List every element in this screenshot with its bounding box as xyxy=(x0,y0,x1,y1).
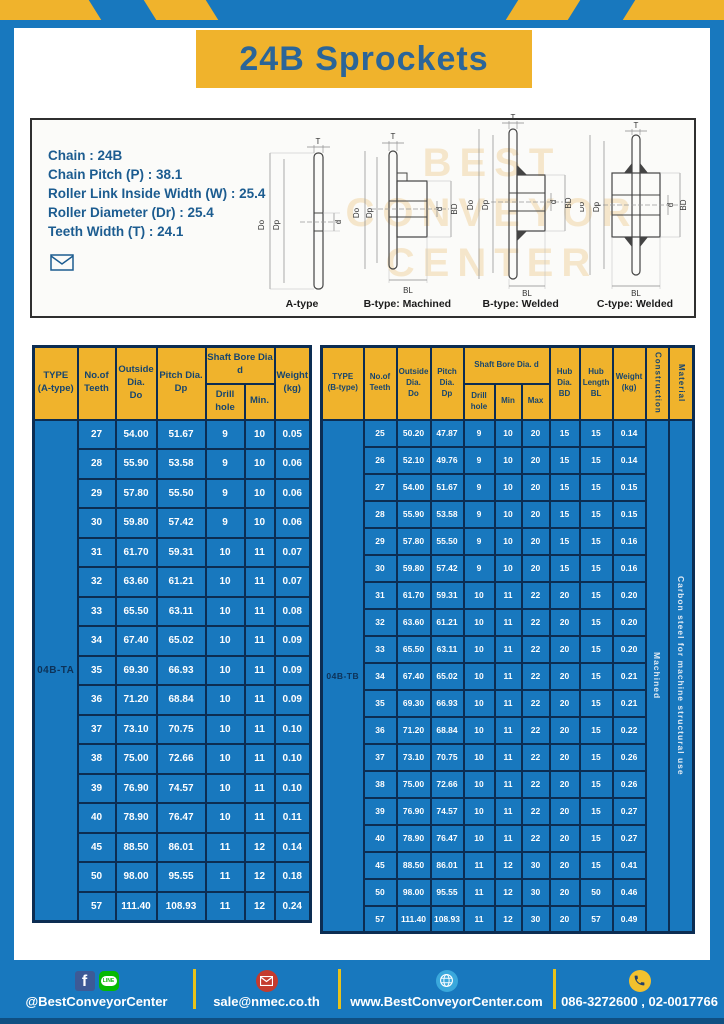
table-cell: 57.80 xyxy=(397,528,431,555)
table-cell: 32 xyxy=(78,567,116,597)
table-cell: 78.90 xyxy=(397,825,431,852)
table-cell: 0.15 xyxy=(613,474,646,501)
table-cell: 98.00 xyxy=(397,879,431,906)
svg-text:d: d xyxy=(435,207,444,211)
drawing-b-machined: T Do Dp d BD xyxy=(353,125,461,310)
table-cell: 10 xyxy=(245,508,275,538)
table-cell: 53.58 xyxy=(431,501,464,528)
table-cell: 11 xyxy=(495,744,522,771)
table-cell: 0.27 xyxy=(613,798,646,825)
table-row: 5098.0095.5511123020500.46 xyxy=(322,879,694,906)
table-cell: 20 xyxy=(550,906,580,933)
table-cell: 20 xyxy=(550,825,580,852)
table-cell: 10 xyxy=(495,474,522,501)
table-cell: 55.50 xyxy=(157,479,206,509)
table-cell: 15 xyxy=(580,420,613,447)
table-cell: 10 xyxy=(464,609,495,636)
col-min: Min. xyxy=(245,384,275,420)
table-cell: 0.10 xyxy=(275,715,311,745)
table-cell: 11 xyxy=(495,663,522,690)
table-cell: 22 xyxy=(522,636,550,663)
table-cell: 15 xyxy=(580,744,613,771)
table-cell: 10 xyxy=(464,798,495,825)
table-cell: 20 xyxy=(550,609,580,636)
table-cell: 0.05 xyxy=(275,420,311,450)
spec-box: BEST CONVEYOR CENTER Chain : 24B Chain P… xyxy=(30,118,696,318)
table-cell: 20 xyxy=(550,771,580,798)
table-cell: 76.90 xyxy=(116,774,157,804)
table-cell: 65.50 xyxy=(116,597,157,627)
table-a-type: TYPE (A-type) No.of Teeth Outside Dia. D… xyxy=(32,345,312,923)
table-cell: 15 xyxy=(550,501,580,528)
table-row: 3263.6061.2110112220150.20 xyxy=(322,609,694,636)
table-cell: 0.26 xyxy=(613,771,646,798)
table-cell: 10 xyxy=(206,538,245,568)
table-cell: 11 xyxy=(206,862,245,892)
facebook-icon: f xyxy=(75,971,95,991)
table-cell: 75.00 xyxy=(116,744,157,774)
table-row: 3875.0072.6610112220150.26 xyxy=(322,771,694,798)
spec-line: Roller Link Inside Width (W) : 25.4 xyxy=(48,184,265,203)
table-cell: 10 xyxy=(206,626,245,656)
table-cell: 65.50 xyxy=(397,636,431,663)
catalog-page: 24B Sprockets BEST CONVEYOR CENTER Chain… xyxy=(0,0,724,1024)
table-cell: 10 xyxy=(464,744,495,771)
table-cell: 72.66 xyxy=(157,744,206,774)
table-cell: 20 xyxy=(550,717,580,744)
phone-numbers: 086-3272600 , 02-0017766 xyxy=(561,994,718,1009)
table-cell: 20 xyxy=(550,582,580,609)
drawing-caption: A-type xyxy=(286,298,319,310)
table-cell: 31 xyxy=(364,582,397,609)
col-max: Max xyxy=(522,384,550,420)
svg-text:BL: BL xyxy=(631,289,641,297)
spec-line: Roller Diameter (Dr) : 25.4 xyxy=(48,203,265,222)
table-cell: 20 xyxy=(550,636,580,663)
table-cell: 0.41 xyxy=(613,852,646,879)
col-outside-dia: Outside Dia. Do xyxy=(397,347,431,420)
drawing-caption: B-type: Welded xyxy=(483,298,559,310)
table-cell: 20 xyxy=(550,852,580,879)
table-cell: 10 xyxy=(495,555,522,582)
table-cell: 31 xyxy=(78,538,116,568)
phone-icon xyxy=(629,970,651,992)
table-cell: 51.67 xyxy=(157,420,206,450)
table-cell: 22 xyxy=(522,717,550,744)
table-cell: 10 xyxy=(206,567,245,597)
svg-text:BD: BD xyxy=(450,203,459,214)
table-cell: 15 xyxy=(580,690,613,717)
col-pitch-dia: Pitch Dia. Dp xyxy=(157,347,206,420)
table-cell: 50.20 xyxy=(397,420,431,447)
table-a-body: 04B-TA2754.0051.679100.052855.9053.58910… xyxy=(34,420,311,922)
table-cell: 57 xyxy=(78,892,116,922)
table-cell: 20 xyxy=(522,555,550,582)
type-label-cell: 04B-TA xyxy=(34,420,78,922)
table-cell: 59.80 xyxy=(397,555,431,582)
table-cell: 53.58 xyxy=(157,449,206,479)
table-cell: 0.06 xyxy=(275,479,311,509)
col-shaft-bore: Shaft Bore Dia. d xyxy=(464,347,550,384)
table-cell: 0.15 xyxy=(613,501,646,528)
table-row: 04B-TA2754.0051.679100.05 xyxy=(34,420,311,450)
svg-text:BL: BL xyxy=(522,289,532,297)
col-teeth: No.of Teeth xyxy=(364,347,397,420)
col-type: TYPE (A-type) xyxy=(34,347,78,420)
table-cell: 10 xyxy=(495,528,522,555)
table-cell: 0.26 xyxy=(613,744,646,771)
table-cell: 11 xyxy=(495,798,522,825)
table-cell: 29 xyxy=(78,479,116,509)
table-cell: 11 xyxy=(245,715,275,745)
table-cell: 11 xyxy=(495,825,522,852)
table-cell: 20 xyxy=(522,501,550,528)
drawing-a-type: T Do Dp d A-type xyxy=(256,135,348,310)
table-cell: 9 xyxy=(206,508,245,538)
svg-text:d: d xyxy=(666,203,675,207)
table-row: 2957.8055.509102015150.16 xyxy=(322,528,694,555)
table-cell: 11 xyxy=(245,656,275,686)
table-cell: 15 xyxy=(580,609,613,636)
table-cell: 66.93 xyxy=(157,656,206,686)
table-row: 04B-TB2550.2047.879102015150.14MachinedC… xyxy=(322,420,694,447)
table-cell: 34 xyxy=(78,626,116,656)
table-cell: 86.01 xyxy=(431,852,464,879)
table-cell: 15 xyxy=(580,717,613,744)
table-cell: 12 xyxy=(245,862,275,892)
table-cell: 20 xyxy=(550,744,580,771)
table-cell: 98.00 xyxy=(116,862,157,892)
table-cell: 40 xyxy=(78,803,116,833)
table-cell: 0.09 xyxy=(275,656,311,686)
table-row: 3671.2068.8410112220150.22 xyxy=(322,717,694,744)
table-cell: 11 xyxy=(245,803,275,833)
drawing-b-welded: T Do Dp d BD xyxy=(467,113,575,310)
svg-text:Do: Do xyxy=(580,201,586,212)
table-cell: 111.40 xyxy=(397,906,431,933)
table-cell: 70.75 xyxy=(431,744,464,771)
table-cell: 88.50 xyxy=(397,852,431,879)
col-material: Material xyxy=(669,347,694,420)
table-cell: 0.16 xyxy=(613,528,646,555)
table-row: 3059.8057.429102015150.16 xyxy=(322,555,694,582)
table-cell: 63.11 xyxy=(431,636,464,663)
footer-phone: 086-3272600 , 02-0017766 xyxy=(556,970,724,1009)
table-cell: 20 xyxy=(550,798,580,825)
corner-stripe xyxy=(623,0,724,20)
table-cell: 20 xyxy=(522,447,550,474)
table-cell: 0.08 xyxy=(275,597,311,627)
col-outside-dia: Outside Dia. Do xyxy=(116,347,157,420)
col-type: TYPE (B-type) xyxy=(322,347,364,420)
table-cell: 54.00 xyxy=(116,420,157,450)
table-cell: 38 xyxy=(78,744,116,774)
table-cell: 50 xyxy=(364,879,397,906)
table-cell: 38 xyxy=(364,771,397,798)
table-cell: 0.09 xyxy=(275,626,311,656)
bottom-strip xyxy=(0,1018,724,1024)
table-cell: 11 xyxy=(495,609,522,636)
svg-text:Dp: Dp xyxy=(592,201,601,212)
website-url: www.BestConveyorCenter.com xyxy=(350,994,542,1009)
table-row: 3467.4065.0210112220150.21 xyxy=(322,663,694,690)
table-cell: 30 xyxy=(522,879,550,906)
table-cell: 30 xyxy=(364,555,397,582)
col-weight: Weight (kg) xyxy=(613,347,646,420)
table-cell: 0.18 xyxy=(275,862,311,892)
table-cell: 39 xyxy=(364,798,397,825)
table-cell: 9 xyxy=(464,447,495,474)
table-cell: 12 xyxy=(495,852,522,879)
table-cell: 15 xyxy=(580,771,613,798)
corner-stripe xyxy=(144,0,218,20)
table-cell: 11 xyxy=(495,636,522,663)
table-cell: 22 xyxy=(522,582,550,609)
svg-text:Dp: Dp xyxy=(481,199,490,210)
col-teeth: No.of Teeth xyxy=(78,347,116,420)
table-cell: 68.84 xyxy=(431,717,464,744)
table-cell: 0.22 xyxy=(613,717,646,744)
table-cell: 15 xyxy=(580,582,613,609)
table-cell: 30 xyxy=(522,852,550,879)
table-cell: 0.14 xyxy=(613,447,646,474)
table-cell: 11 xyxy=(245,597,275,627)
table-cell: 0.46 xyxy=(613,879,646,906)
table-cell: 15 xyxy=(580,447,613,474)
table-cell: 57.42 xyxy=(431,555,464,582)
table-cell: 10 xyxy=(245,479,275,509)
table-cell: 12 xyxy=(495,906,522,933)
table-cell: 61.21 xyxy=(431,609,464,636)
table-cell: 52.10 xyxy=(397,447,431,474)
table-cell: 0.10 xyxy=(275,774,311,804)
table-cell: 11 xyxy=(495,717,522,744)
table-row: 3773.1070.7510112220150.26 xyxy=(322,744,694,771)
spec-line: Chain Pitch (P) : 38.1 xyxy=(48,165,265,184)
table-cell: 86.01 xyxy=(157,833,206,863)
table-cell: 15 xyxy=(550,420,580,447)
svg-text:T: T xyxy=(634,121,639,130)
email-address: sale@nmec.co.th xyxy=(213,994,320,1009)
table-cell: 68.84 xyxy=(157,685,206,715)
table-row: 4078.9076.4710112220150.27 xyxy=(322,825,694,852)
table-cell: 10 xyxy=(464,771,495,798)
table-cell: 10 xyxy=(206,744,245,774)
table-cell: 15 xyxy=(580,501,613,528)
table-cell: 27 xyxy=(364,474,397,501)
table-b-body: 04B-TB2550.2047.879102015150.14MachinedC… xyxy=(322,420,694,933)
table-cell: 22 xyxy=(522,663,550,690)
table-cell: 15 xyxy=(550,474,580,501)
table-cell: 65.02 xyxy=(431,663,464,690)
table-cell: 95.55 xyxy=(157,862,206,892)
table-cell: 67.40 xyxy=(397,663,431,690)
social-handle: @BestConveyorCenter xyxy=(26,994,168,1009)
table-cell: 11 xyxy=(245,567,275,597)
corner-stripe xyxy=(506,0,580,20)
table-cell: 30 xyxy=(522,906,550,933)
table-cell: 10 xyxy=(495,447,522,474)
table-cell: 10 xyxy=(245,449,275,479)
table-cell: 9 xyxy=(464,474,495,501)
table-cell: 9 xyxy=(206,420,245,450)
col-drill-hole: Drill hole xyxy=(206,384,245,420)
table-cell: 49.76 xyxy=(431,447,464,474)
table-cell: 27 xyxy=(78,420,116,450)
svg-text:T: T xyxy=(510,113,515,122)
table-cell: 108.93 xyxy=(431,906,464,933)
table-cell: 20 xyxy=(550,690,580,717)
col-hub-length: Hub Length BL xyxy=(580,347,613,420)
table-cell: 54.00 xyxy=(397,474,431,501)
table-row: 2855.9053.589102015150.15 xyxy=(322,501,694,528)
svg-text:T: T xyxy=(391,132,396,141)
table-cell: 20 xyxy=(550,879,580,906)
table-row: 3161.7059.3110112220150.20 xyxy=(322,582,694,609)
table-cell: 66.93 xyxy=(431,690,464,717)
table-cell: 0.49 xyxy=(613,906,646,933)
table-cell: 67.40 xyxy=(116,626,157,656)
table-cell: 61.70 xyxy=(397,582,431,609)
line-icon: LINE xyxy=(99,971,119,991)
svg-text:BD: BD xyxy=(679,199,688,210)
drawing-c-welded: T Do Dp d xyxy=(580,121,690,310)
table-cell: 11 xyxy=(245,744,275,774)
table-cell: 0.07 xyxy=(275,538,311,568)
table-row: 57111.40108.9311123020570.49 xyxy=(322,906,694,933)
title-banner: 24B Sprockets xyxy=(196,30,532,88)
footer-email: sale@nmec.co.th xyxy=(196,970,338,1009)
svg-text:d: d xyxy=(334,220,343,224)
table-cell: 76.47 xyxy=(157,803,206,833)
table-cell: 70.75 xyxy=(157,715,206,745)
table-cell: 55.50 xyxy=(431,528,464,555)
table-cell: 29 xyxy=(364,528,397,555)
sprocket-drawings: T Do Dp d A-type xyxy=(256,128,690,310)
material-cell: Carbon steel for machine structural use xyxy=(669,420,694,933)
table-cell: 12 xyxy=(245,833,275,863)
table-cell: 15 xyxy=(550,555,580,582)
table-cell: 57.80 xyxy=(116,479,157,509)
table-cell: 108.93 xyxy=(157,892,206,922)
table-cell: 63.60 xyxy=(397,609,431,636)
table-cell: 0.20 xyxy=(613,636,646,663)
page-title: 24B Sprockets xyxy=(239,40,488,79)
table-cell: 74.57 xyxy=(431,798,464,825)
table-cell: 9 xyxy=(464,528,495,555)
table-cell: 10 xyxy=(245,420,275,450)
table-cell: 72.66 xyxy=(431,771,464,798)
col-weight: Weight (kg) xyxy=(275,347,311,420)
drawing-caption: B-type: Machined xyxy=(364,298,452,310)
table-row: 3365.5063.1110112220150.20 xyxy=(322,636,694,663)
table-cell: 59.80 xyxy=(116,508,157,538)
table-cell: 10 xyxy=(464,582,495,609)
table-cell: 10 xyxy=(464,663,495,690)
table-cell: 69.30 xyxy=(116,656,157,686)
table-cell: 0.21 xyxy=(613,690,646,717)
table-cell: 35 xyxy=(364,690,397,717)
table-cell: 15 xyxy=(580,636,613,663)
table-cell: 10 xyxy=(206,685,245,715)
table-cell: 9 xyxy=(206,449,245,479)
table-cell: 0.11 xyxy=(275,803,311,833)
table-cell: 10 xyxy=(495,501,522,528)
table-cell: 55.90 xyxy=(116,449,157,479)
table-cell: 63.60 xyxy=(116,567,157,597)
table-cell: 0.07 xyxy=(275,567,311,597)
spec-line: Teeth Width (T) : 24.1 xyxy=(48,222,265,241)
table-cell: 28 xyxy=(78,449,116,479)
table-cell: 57 xyxy=(364,906,397,933)
table-cell: 40 xyxy=(364,825,397,852)
table-cell: 15 xyxy=(550,447,580,474)
table-cell: 71.20 xyxy=(397,717,431,744)
table-cell: 9 xyxy=(206,479,245,509)
table-cell: 76.47 xyxy=(431,825,464,852)
table-cell: 50 xyxy=(580,879,613,906)
corner-stripe xyxy=(0,0,101,20)
table-cell: 20 xyxy=(522,528,550,555)
table-cell: 15 xyxy=(580,798,613,825)
table-a-header: TYPE (A-type) No.of Teeth Outside Dia. D… xyxy=(34,347,311,420)
svg-text:Dp: Dp xyxy=(272,219,281,230)
table-cell: 22 xyxy=(522,744,550,771)
table-cell: 75.00 xyxy=(397,771,431,798)
envelope-icon xyxy=(50,254,74,276)
table-cell: 11 xyxy=(206,892,245,922)
footer-contact-bar: f LINE @BestConveyorCenter sale@nmec.co.… xyxy=(0,960,724,1018)
table-cell: 22 xyxy=(522,825,550,852)
table-cell: 11 xyxy=(206,833,245,863)
globe-icon xyxy=(436,970,458,992)
svg-text:Do: Do xyxy=(257,219,266,230)
table-cell: 10 xyxy=(464,825,495,852)
table-cell: 45 xyxy=(78,833,116,863)
table-cell: 26 xyxy=(364,447,397,474)
table-cell: 88.50 xyxy=(116,833,157,863)
table-cell: 15 xyxy=(550,528,580,555)
table-cell: 73.10 xyxy=(116,715,157,745)
table-cell: 11 xyxy=(495,690,522,717)
table-cell: 22 xyxy=(522,771,550,798)
table-b-type: TYPE (B-type) No.of Teeth Outside Dia. D… xyxy=(320,345,695,934)
table-cell: 37 xyxy=(78,715,116,745)
chain-specs: Chain : 24B Chain Pitch (P) : 38.1 Rolle… xyxy=(48,146,265,241)
table-cell: 10 xyxy=(464,717,495,744)
drawing-caption: C-type: Welded xyxy=(597,298,673,310)
svg-text:BL: BL xyxy=(403,286,413,295)
table-cell: 73.10 xyxy=(397,744,431,771)
table-cell: 74.57 xyxy=(157,774,206,804)
table-cell: 20 xyxy=(522,474,550,501)
table-cell: 0.24 xyxy=(275,892,311,922)
col-pitch-dia: Pitch Dia. Dp xyxy=(431,347,464,420)
col-construction: Construction xyxy=(646,347,669,420)
table-cell: 10 xyxy=(206,597,245,627)
table-cell: 10 xyxy=(206,715,245,745)
table-cell: 78.90 xyxy=(116,803,157,833)
table-cell: 0.14 xyxy=(613,420,646,447)
table-cell: 12 xyxy=(245,892,275,922)
table-cell: 15 xyxy=(580,852,613,879)
table-row: 4588.5086.0111123020150.41 xyxy=(322,852,694,879)
table-cell: 0.20 xyxy=(613,582,646,609)
table-cell: 10 xyxy=(464,636,495,663)
table-cell: 15 xyxy=(580,474,613,501)
type-label-cell: 04B-TB xyxy=(322,420,364,933)
col-hub-dia: Hub Dia. BD xyxy=(550,347,580,420)
